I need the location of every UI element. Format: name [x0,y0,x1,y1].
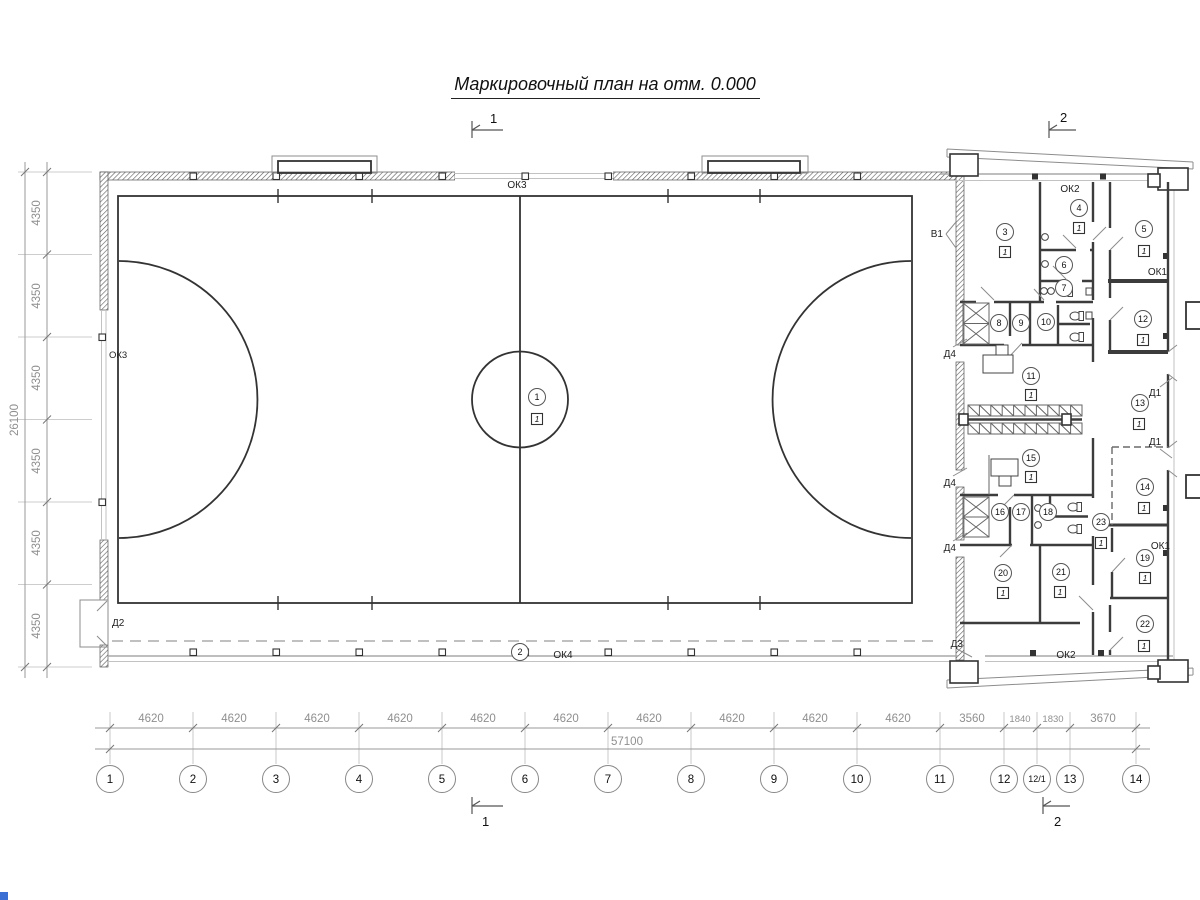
dim-text: 4350 [31,365,43,391]
room-number: 20 [998,568,1008,578]
extension-lines [18,172,92,667]
room-marker: 9 [1013,315,1030,332]
room-marker: 13 [1132,395,1149,412]
door-label-D1: Д1 [1149,437,1162,448]
room-number: 22 [1140,619,1150,629]
floor-plan-drawing: Маркировочный план на отм. 0.000 1 2 1 2… [0,0,1200,900]
dim-text: 4350 [31,283,43,309]
room-marker: 22 [1137,616,1154,633]
vestibule-outline [702,156,808,173]
dim-text: 4620 [885,713,911,725]
toilet-icon [1070,312,1084,321]
rooms-block [97,182,1177,660]
desk [991,459,1018,476]
room-marker: 11 [1023,368,1040,385]
room-markers: 1 1 2 3 1 4 1 5 1 6 7 8 9 10 11 1 12 1 1… [512,200,1154,661]
drawing-title: Маркировочный план на отм. 0.000 [451,74,760,99]
door-label-D4: Д4 [944,543,957,554]
floor-type: 1 [1141,335,1146,345]
floor-type: 1 [1003,247,1008,257]
floor-mark: 1 [1000,247,1011,258]
left-wall [100,172,108,310]
grid-axis-label: 8 [688,774,694,786]
room-marker: 5 [1136,221,1153,238]
room-marker: 15 [1023,450,1040,467]
room-marker: 17 [1013,504,1030,521]
floor-type: 1 [1142,503,1147,513]
section-arrow-icon [472,797,503,814]
vestibule-outline [272,156,377,173]
room-number: 4 [1076,203,1081,213]
dim-text: 1840 [1009,714,1030,725]
sink-icon [1035,234,1092,529]
left-wall [100,540,108,600]
vestibule [278,161,371,173]
left-goal-arc [119,261,257,538]
door-label-D3: Д3 [951,639,964,650]
room-marker: 6 [1056,257,1073,274]
locker-post [1062,414,1071,425]
dim-text: 4620 [470,713,496,725]
wall-columns [99,173,1169,656]
dim-text: 3560 [959,713,985,725]
floor-mark: 1 [998,588,1009,599]
grid-axis-label: 6 [522,774,528,786]
dim-text: 4620 [802,713,828,725]
floor-type: 1 [1142,641,1147,651]
grid-bubble-row [97,766,1150,793]
dim-text: 4620 [221,713,247,725]
room-marker: 14 [1137,479,1154,496]
grid-axis-label: 1 [107,774,113,786]
total-width-text: 57100 [611,736,643,748]
floor-mark: 1 [1139,503,1150,514]
room-marker: 20 [995,565,1012,582]
shaft-hatched-box [963,497,989,537]
floor-type: 1 [1143,573,1148,583]
floor-type: 1 [1099,538,1104,548]
dim-text: 4620 [138,713,164,725]
dim-text: 4620 [553,713,579,725]
locker-post [959,414,968,425]
leader-lines [97,222,1172,657]
toilet-icon [1068,503,1082,512]
dim-text: 3670 [1090,713,1116,725]
room-number: 11 [1026,371,1035,381]
zone-number: 2 [517,647,522,657]
vestibule [708,161,800,173]
dim-text: 4350 [31,613,43,639]
room-number: 5 [1141,224,1146,234]
room-marker: 23 [1093,514,1110,531]
section-label: 2 [1054,814,1061,829]
room-number: 19 [1140,553,1150,563]
floor-mark: 1 [1139,641,1150,652]
porch-D2 [80,600,108,647]
vent-label-V1: В1 [931,229,944,240]
sports-field [118,189,912,610]
section-marker-1-top: 1 [472,111,503,138]
section-label: 2 [1060,110,1067,125]
dim-text: 4350 [31,530,43,556]
grid-axis-label: 10 [851,774,864,786]
room-marker: 10 [1038,314,1055,331]
door-label-D1: Д1 [1149,388,1162,399]
floor-mark: 1 [1134,419,1145,430]
room-marker: 19 [1137,550,1154,567]
window-label-OK2-top: ОК2 [1060,184,1080,195]
room-marker: 12 [1135,311,1152,328]
section-label: 1 [490,111,497,126]
dim-text: 1830 [1042,714,1063,725]
column-marks-left [99,334,106,506]
exterior-unit [1186,302,1200,329]
zone-marker: 2 [512,644,529,661]
left-wall [100,645,108,667]
dimension-lines [25,162,47,678]
exterior-unit [1186,475,1200,498]
dim-text: 4620 [719,713,745,725]
section-arrow-icon [472,121,503,138]
section-marker-2-top: 2 [1049,110,1076,138]
room-marker: 3 [997,224,1014,241]
total-height-text: 26100 [9,404,21,436]
grid-axis-label: 3 [273,774,279,786]
dim-text: 4620 [387,713,413,725]
window-label-OK4: ОК4 [553,650,573,661]
window-label-OK3-left: ОК3 [109,350,127,361]
bottom-dimensions: 4620 4620 4620 4620 4620 4620 4620 4620 … [95,712,1150,764]
field-tick-marks [278,189,760,610]
room-marker: 21 [1053,564,1070,581]
room-number: 15 [1026,453,1036,463]
room-number: 12 [1138,314,1148,324]
grid-bubbles: 1 2 3 4 5 6 7 8 9 10 11 12 12/1 13 14 [97,766,1150,793]
room-number: 3 [1002,227,1007,237]
grid-axis-label: 7 [605,774,611,786]
window-label-OK3-top: ОК3 [507,180,527,191]
screen-corner-artifact [0,892,8,900]
section-marker-1-bottom: 1 [472,797,503,829]
zone-number: 1 [534,392,539,402]
page-title: Маркировочный план на отм. 0.000 [454,74,756,94]
room-marker: 8 [991,315,1008,332]
floor-mark: 1 [1139,246,1150,257]
desk [983,355,1013,373]
grid-axis-label: 12 [998,774,1011,786]
desk-chair [996,345,1008,355]
door-swings [981,227,1177,650]
floor-mark: 1 [1138,335,1149,346]
zone-marker: 1 [529,389,546,406]
section-label: 1 [482,814,489,829]
field-boundary [118,196,912,603]
floor-type: 1 [1001,588,1006,598]
floor-mark: 1 [1074,223,1085,234]
grid-axis-label: 14 [1130,774,1143,786]
floor-type: 1 [535,414,540,424]
dim-text: 4620 [636,713,662,725]
door-label-D2: Д2 [112,618,125,629]
floor-mark: 1 [532,414,543,425]
room-number: 9 [1018,318,1023,328]
room-number: 7 [1061,283,1066,293]
room-number: 16 [995,507,1005,517]
grid-axis-label: 9 [771,774,777,786]
section-marker-2-bottom: 2 [1043,797,1070,829]
grid-axis-label: 12/1 [1028,774,1046,784]
shaft-hatched-box [963,303,989,344]
room-marker: 4 [1071,200,1088,217]
floor-mark: 1 [1026,390,1037,401]
wardrobe-lockers [959,405,1082,434]
grid-axis-label: 2 [190,774,196,786]
room-number: 14 [1140,482,1150,492]
window-gap [455,172,613,181]
floor-type: 1 [1077,223,1082,233]
door-label-D4: Д4 [944,349,957,360]
section-arrow-icon [1043,797,1070,814]
floor-mark: 1 [1055,587,1066,598]
grid-axis-label: 13 [1064,774,1077,786]
dim-text: 4350 [31,200,43,226]
grid-axis-label: 4 [356,774,363,786]
right-goal-arc [773,261,911,538]
room-number: 18 [1043,507,1053,517]
window-label-OK1-top: ОК1 [1148,267,1168,278]
room-number: 10 [1041,317,1051,327]
desk-chair [999,476,1011,486]
room-marker: 7 [1056,280,1073,297]
grid-axis-label: 5 [439,774,445,786]
floor-type: 1 [1058,587,1063,597]
floor-mark: 1 [1140,573,1151,584]
top-canopy [947,149,1193,169]
toilet-icon [1070,333,1084,342]
room-number: 6 [1061,260,1066,270]
window-label-OK1-bottom: ОК1 [1151,541,1171,552]
room-number: 23 [1096,517,1106,527]
door-label-D4: Д4 [944,478,957,489]
dim-text: 4620 [304,713,330,725]
floor-type: 1 [1029,390,1034,400]
room-marker: 16 [992,504,1009,521]
floor-mark: 1 [1096,538,1107,549]
room-number: 21 [1056,567,1066,577]
floor-mark: 1 [1026,472,1037,483]
floor-type: 1 [1137,419,1142,429]
room-number: 17 [1016,507,1026,517]
shafts-and-furniture [963,234,1092,537]
window-label-OK2-bottom: ОК2 [1056,650,1076,661]
floor-type: 1 [1142,246,1147,256]
room-marker: 18 [1040,504,1057,521]
toilet-icon [1068,525,1082,534]
grid-axis-label: 11 [934,774,946,786]
room-number: 8 [996,318,1001,328]
room-number: 13 [1135,398,1145,408]
floor-type: 1 [1029,472,1034,482]
dim-text: 4350 [31,448,43,474]
